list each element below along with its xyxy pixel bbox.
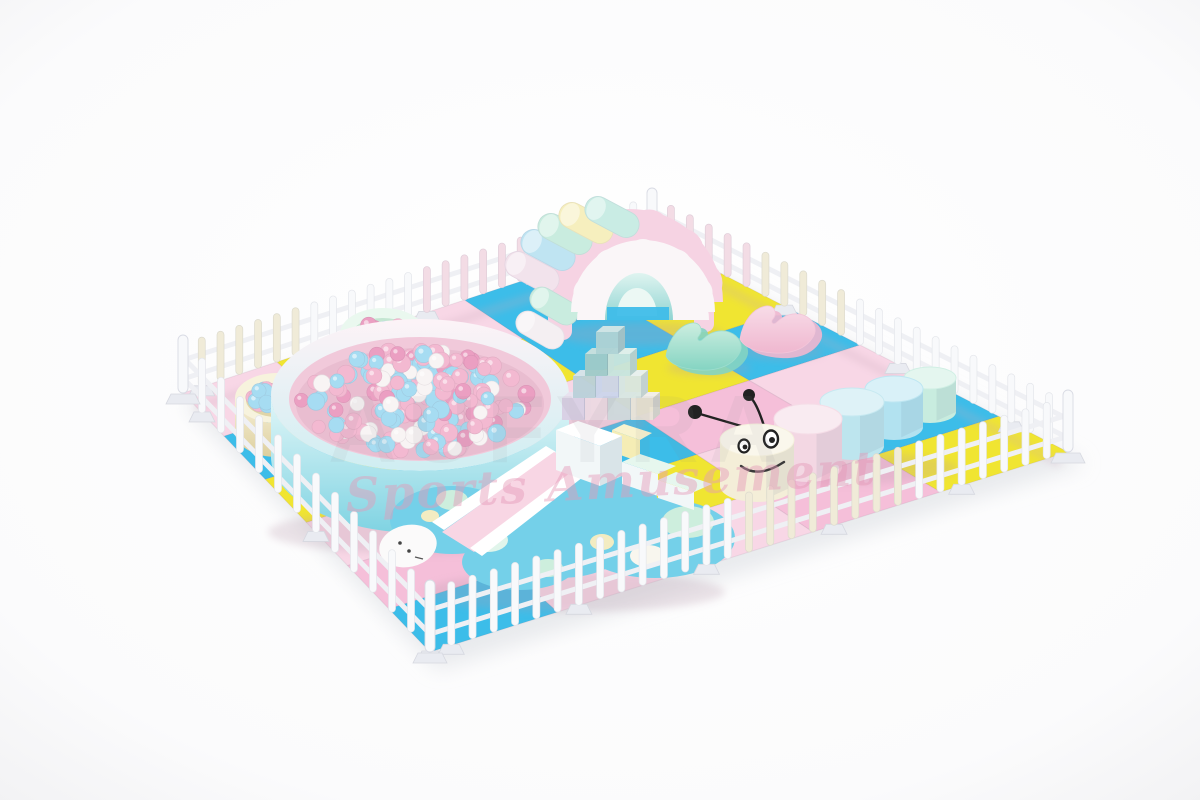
ball-highlight — [352, 354, 357, 359]
fence-picket — [275, 435, 282, 493]
fence-picket — [724, 498, 731, 558]
fence-foot — [189, 412, 215, 422]
fence-picket — [703, 505, 710, 566]
fence-picket — [913, 327, 920, 374]
fence-picket — [958, 428, 965, 485]
fence-picket — [894, 447, 901, 505]
play-ball — [349, 351, 365, 367]
fence-picket — [970, 355, 977, 403]
play-ball — [307, 393, 324, 410]
fence-picket — [916, 441, 923, 499]
fence-picket — [875, 308, 882, 354]
ball-highlight — [372, 358, 376, 362]
fence-picket — [405, 272, 412, 318]
fence-picket — [255, 319, 262, 368]
fence-picket — [1001, 415, 1008, 472]
soft-block — [608, 354, 630, 376]
fence-picket — [979, 422, 986, 479]
ball-highlight — [393, 349, 397, 353]
fence-picket — [660, 518, 667, 579]
fence-picket — [819, 280, 826, 325]
fence-foot — [885, 363, 911, 373]
play-ball — [294, 393, 308, 407]
product-photo: AUFYRA Sports Amusement — [0, 0, 1200, 800]
ball-highlight — [369, 371, 374, 376]
fence-foot — [1051, 453, 1085, 463]
fence-picket — [800, 271, 807, 316]
fence-picket — [937, 434, 944, 492]
ball-highlight — [432, 356, 437, 361]
fence-corner-post — [1063, 390, 1073, 452]
fence-foot — [949, 484, 975, 494]
fence-picket — [423, 267, 430, 313]
fence-picket — [639, 524, 646, 585]
fence-corner-post — [425, 580, 435, 652]
fence-picket — [498, 243, 505, 288]
ball-highlight — [418, 348, 423, 353]
fence-picket — [218, 377, 225, 433]
fence-picket — [442, 261, 449, 307]
fence-foot — [166, 394, 200, 404]
fence-picket — [597, 537, 604, 599]
fence-picket — [743, 243, 750, 287]
fence-picket — [989, 365, 996, 414]
ball-highlight — [297, 396, 301, 400]
soft-play-scene: AUFYRA Sports Amusement — [0, 0, 1200, 800]
fence-picket — [533, 556, 540, 619]
ball-highlight — [255, 386, 259, 390]
fence-foot — [303, 531, 329, 541]
fence-picket — [389, 550, 396, 612]
fence-picket — [294, 454, 301, 513]
fence-picket — [838, 290, 845, 336]
fence-picket — [448, 582, 455, 646]
fence-picket — [256, 416, 263, 473]
fence-picket — [554, 550, 561, 612]
fence-picket — [217, 331, 224, 380]
fence-picket — [408, 569, 415, 632]
turtle-eye — [398, 541, 402, 545]
fence-picket — [575, 543, 582, 605]
fence-corner-post — [178, 335, 188, 393]
play-ball — [478, 362, 491, 375]
ball-highlight — [409, 353, 414, 358]
fence-foot — [566, 604, 592, 614]
fence-picket — [682, 511, 689, 572]
fence-picket — [199, 358, 206, 413]
fence-foot — [413, 653, 447, 663]
fence-picket — [1022, 409, 1029, 466]
ball-highlight — [383, 346, 388, 351]
fence-picket — [618, 530, 625, 592]
soft-block — [596, 332, 618, 354]
fence-picket — [762, 252, 769, 296]
fence-picket — [490, 569, 497, 632]
arch-tunnel-ground — [607, 307, 669, 320]
fence-picket — [781, 262, 788, 307]
fence-picket — [724, 233, 731, 276]
play-ball — [464, 355, 478, 369]
fence-picket — [273, 314, 280, 362]
play-ball — [312, 420, 325, 433]
fence-picket — [370, 531, 377, 593]
fence-picket — [1043, 402, 1050, 458]
play-ball — [390, 347, 405, 362]
fence-picket — [236, 325, 243, 374]
fence-picket — [1008, 374, 1015, 423]
play-ball — [449, 353, 463, 367]
soft-block — [585, 354, 607, 376]
ball-highlight — [452, 356, 456, 360]
fence-picket — [480, 249, 487, 294]
fence-picket — [332, 492, 339, 552]
fence-picket — [237, 396, 244, 452]
fence-picket — [469, 575, 476, 638]
turtle-eye — [407, 549, 411, 553]
fence-picket — [857, 299, 864, 345]
play-ball — [369, 355, 383, 369]
fence-picket — [292, 308, 299, 356]
fence-picket — [313, 473, 320, 532]
fence-picket — [894, 318, 901, 365]
fence-picket — [461, 255, 468, 300]
fence-foot — [693, 564, 719, 574]
fence-picket — [512, 562, 519, 625]
fence-foot — [821, 524, 847, 534]
play-ball — [429, 353, 444, 368]
